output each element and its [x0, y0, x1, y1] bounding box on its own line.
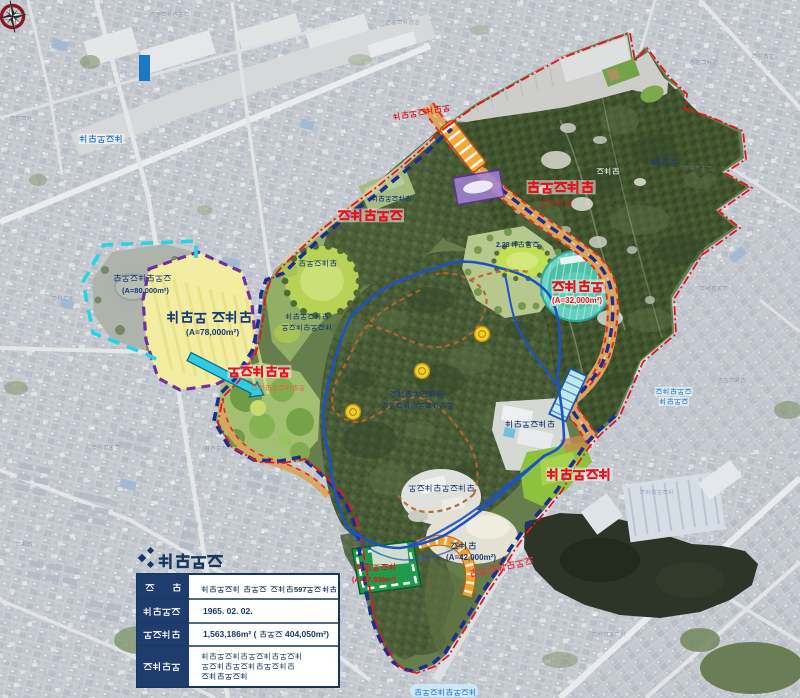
svg-text:1965. 02. 02.: 1965. 02. 02.	[203, 606, 253, 616]
svg-text:83: 83	[651, 157, 661, 167]
svg-text:2.28: 2.28	[496, 242, 510, 249]
svg-text:597: 597	[294, 585, 307, 594]
svg-text:(A=78,000m²): (A=78,000m²)	[186, 327, 239, 337]
svg-text:1,563,186m² (: 1,563,186m² (	[203, 629, 257, 639]
svg-text:(A=32,000m²): (A=32,000m²)	[552, 296, 602, 305]
svg-text:(A=80,000m²): (A=80,000m²)	[122, 286, 169, 295]
svg-text:(A=27,930m²): (A=27,930m²)	[352, 577, 396, 584]
svg-text:(A=42,000m²): (A=42,000m²)	[446, 553, 496, 562]
svg-text:404,050m²): 404,050m²)	[285, 629, 329, 639]
